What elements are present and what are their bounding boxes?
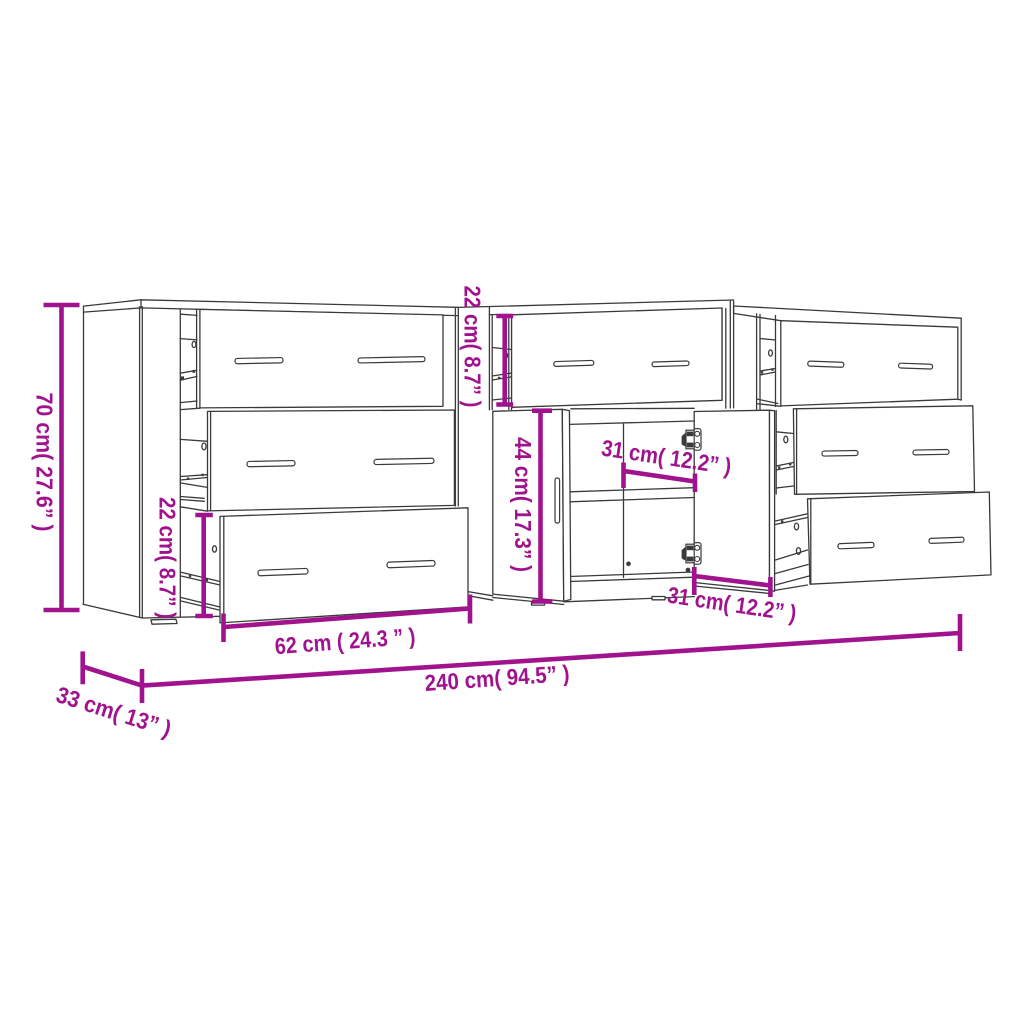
svg-text:70 cm( 27.6” ): 70 cm( 27.6” ) bbox=[32, 393, 58, 532]
svg-text:44 cm( 17.3” ): 44 cm( 17.3” ) bbox=[510, 437, 536, 572]
svg-text:22 cm( 8.7” ): 22 cm( 8.7” ) bbox=[155, 497, 181, 619]
svg-text:22 cm( 8.7” ): 22 cm( 8.7” ) bbox=[460, 286, 486, 408]
